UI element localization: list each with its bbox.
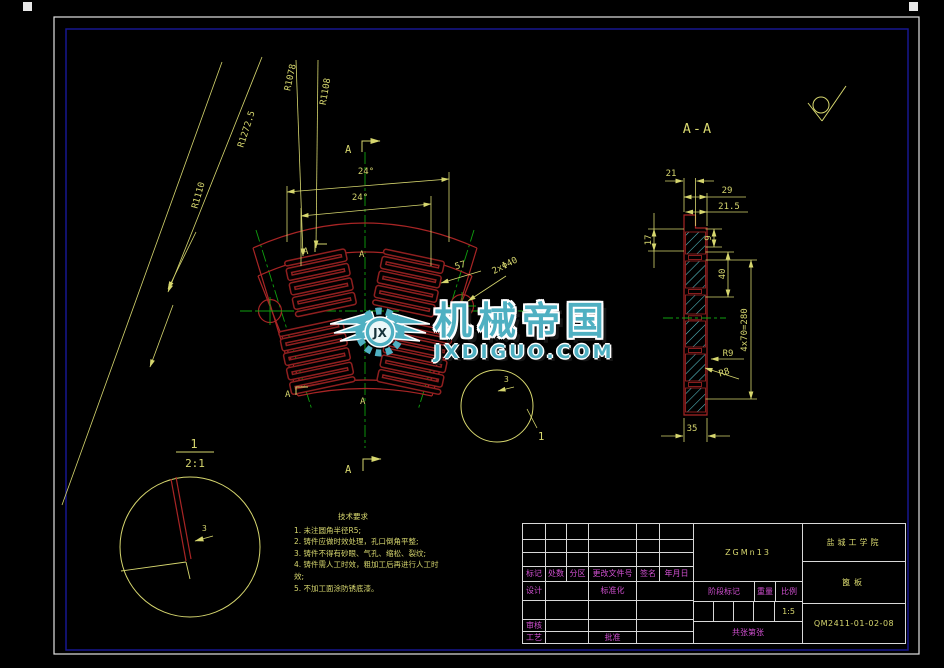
sheet-count-row: 共 张 第 张: [694, 622, 802, 643]
dim-angle-inner: 24°: [352, 193, 368, 203]
tech-notes: 技术要求 1. 未注圆角半径R5; 2. 铸件应做时效处理，孔口倒角平整; 3.…: [294, 511, 444, 594]
detail-balloon: [461, 370, 537, 442]
section-title: A-A: [683, 121, 713, 137]
cad-screenshot: R1110 R1272.5 R1078 R1108 24° 24° A A A …: [0, 0, 944, 668]
label-sign: 签名: [637, 567, 659, 580]
dim-r9: R9: [723, 349, 734, 359]
note-item: 3. 铸件不得有砂眼、气孔、缩松、裂纹;: [294, 548, 444, 560]
section-letter-mid-right: A: [359, 250, 365, 260]
watermark: JX 机械帝国 JXDIGUO.COM: [330, 296, 615, 368]
dim-r8: R8: [718, 367, 731, 380]
note-item: 1. 未注圆角半径R5;: [294, 525, 444, 537]
corner-grip-left: [23, 2, 32, 11]
label-sheet: 张: [756, 627, 764, 638]
label-design: 设计: [523, 582, 545, 600]
label-no: 第: [748, 627, 756, 638]
corner-grip-right: [909, 2, 918, 11]
detail-scale: 2:1: [185, 457, 205, 470]
note-item: 2. 铸件应做时效处理，孔口倒角平整;: [294, 536, 444, 548]
label-weight: 重量: [755, 582, 775, 601]
detail-view: 3 1 2:1: [120, 437, 260, 617]
watermark-domain: JXDIGUO.COM: [434, 341, 615, 363]
section-letter-mid-left: A: [303, 247, 309, 257]
detail-circle: [120, 477, 260, 617]
surface-finish-icon: [808, 86, 846, 121]
hole-left: [256, 297, 284, 325]
dim-35: 35: [687, 424, 698, 434]
label-approve: 批准: [589, 632, 636, 643]
scale-value: 1:5: [775, 602, 802, 621]
winged-gear-logo-icon: JX: [330, 296, 430, 368]
dim-3-main: 3: [504, 375, 509, 384]
section-letter-top: A: [345, 144, 352, 156]
drawing-number: QM2411-01-02-08: [803, 604, 905, 643]
section-letter-low-right: A: [360, 397, 366, 407]
label-process: 工艺: [523, 632, 545, 643]
note-item: 5. 不加工面涂防锈底漆。: [294, 583, 444, 595]
section-letter-low-left: A: [285, 390, 291, 400]
dim-29: 29: [722, 186, 733, 196]
dim-57: 57: [454, 260, 467, 273]
section-strip: [663, 215, 726, 415]
detail-slot-lines: [171, 477, 191, 561]
watermark-brand: 机械帝国: [434, 301, 615, 341]
dim-r-outer: R1272.5: [236, 110, 257, 149]
dim-r1108: R1108: [319, 77, 334, 105]
label-mark: 标记: [523, 567, 545, 580]
dim-21: 21: [666, 169, 677, 179]
label-scale: 比例: [776, 582, 802, 601]
label-stage: 阶段标记: [694, 582, 754, 601]
dim-r1110: R1110: [191, 181, 208, 210]
dim-9: 9: [704, 235, 714, 240]
label-total: 共: [732, 627, 740, 638]
dim-21-5: 21.5: [718, 202, 740, 212]
label-sheets: 张: [740, 627, 748, 638]
dim-holes: 2xΦ40: [491, 256, 520, 277]
label-check: 审核: [523, 620, 545, 631]
label-count: 处数: [546, 567, 566, 580]
note-item: 4. 铸件需人工时效，粗加工后再进行人工时效;: [294, 559, 444, 582]
title-block-middle: ZGMn13 阶段标记 重量 比例 1:5 共 张 第 张: [694, 524, 802, 643]
detail-dim-3: 3: [202, 524, 207, 533]
section-letter-bottom: A: [345, 464, 352, 476]
section-view: A-A: [644, 86, 846, 442]
part-name: 篦板: [803, 562, 905, 603]
title-block: 标记 处数 分区 更改文件号 签名 年月日 设计 标准化 审核 工艺 批准: [522, 523, 906, 644]
label-doc-no: 更改文件号: [589, 567, 636, 580]
label-zone: 分区: [567, 567, 588, 580]
balloon-number: 1: [538, 431, 544, 443]
organization-name: 盐城工学院: [803, 524, 905, 561]
detail-edge-lines: [121, 536, 213, 579]
dim-17: 17: [644, 235, 654, 246]
notes-title: 技术要求: [338, 511, 444, 523]
title-block-right: 盐城工学院 篦板 QM2411-01-02-08: [803, 524, 905, 643]
dim-40: 40: [718, 269, 728, 280]
dim-pitch: 4x70=280: [740, 308, 750, 351]
title-block-revision-grid: 标记 处数 分区 更改文件号 签名 年月日 设计 标准化 审核 工艺 批准: [523, 524, 693, 643]
dim-angle-top: 24°: [358, 167, 374, 177]
fan-view: R1110 R1272.5 R1078 R1108 24° 24° A A A …: [62, 57, 544, 505]
label-date: 年月日: [660, 567, 693, 580]
logo-monogram: JX: [372, 326, 387, 340]
material-value: ZGMn13: [694, 524, 802, 581]
label-standard: 标准化: [589, 582, 636, 600]
detail-number: 1: [190, 437, 197, 451]
